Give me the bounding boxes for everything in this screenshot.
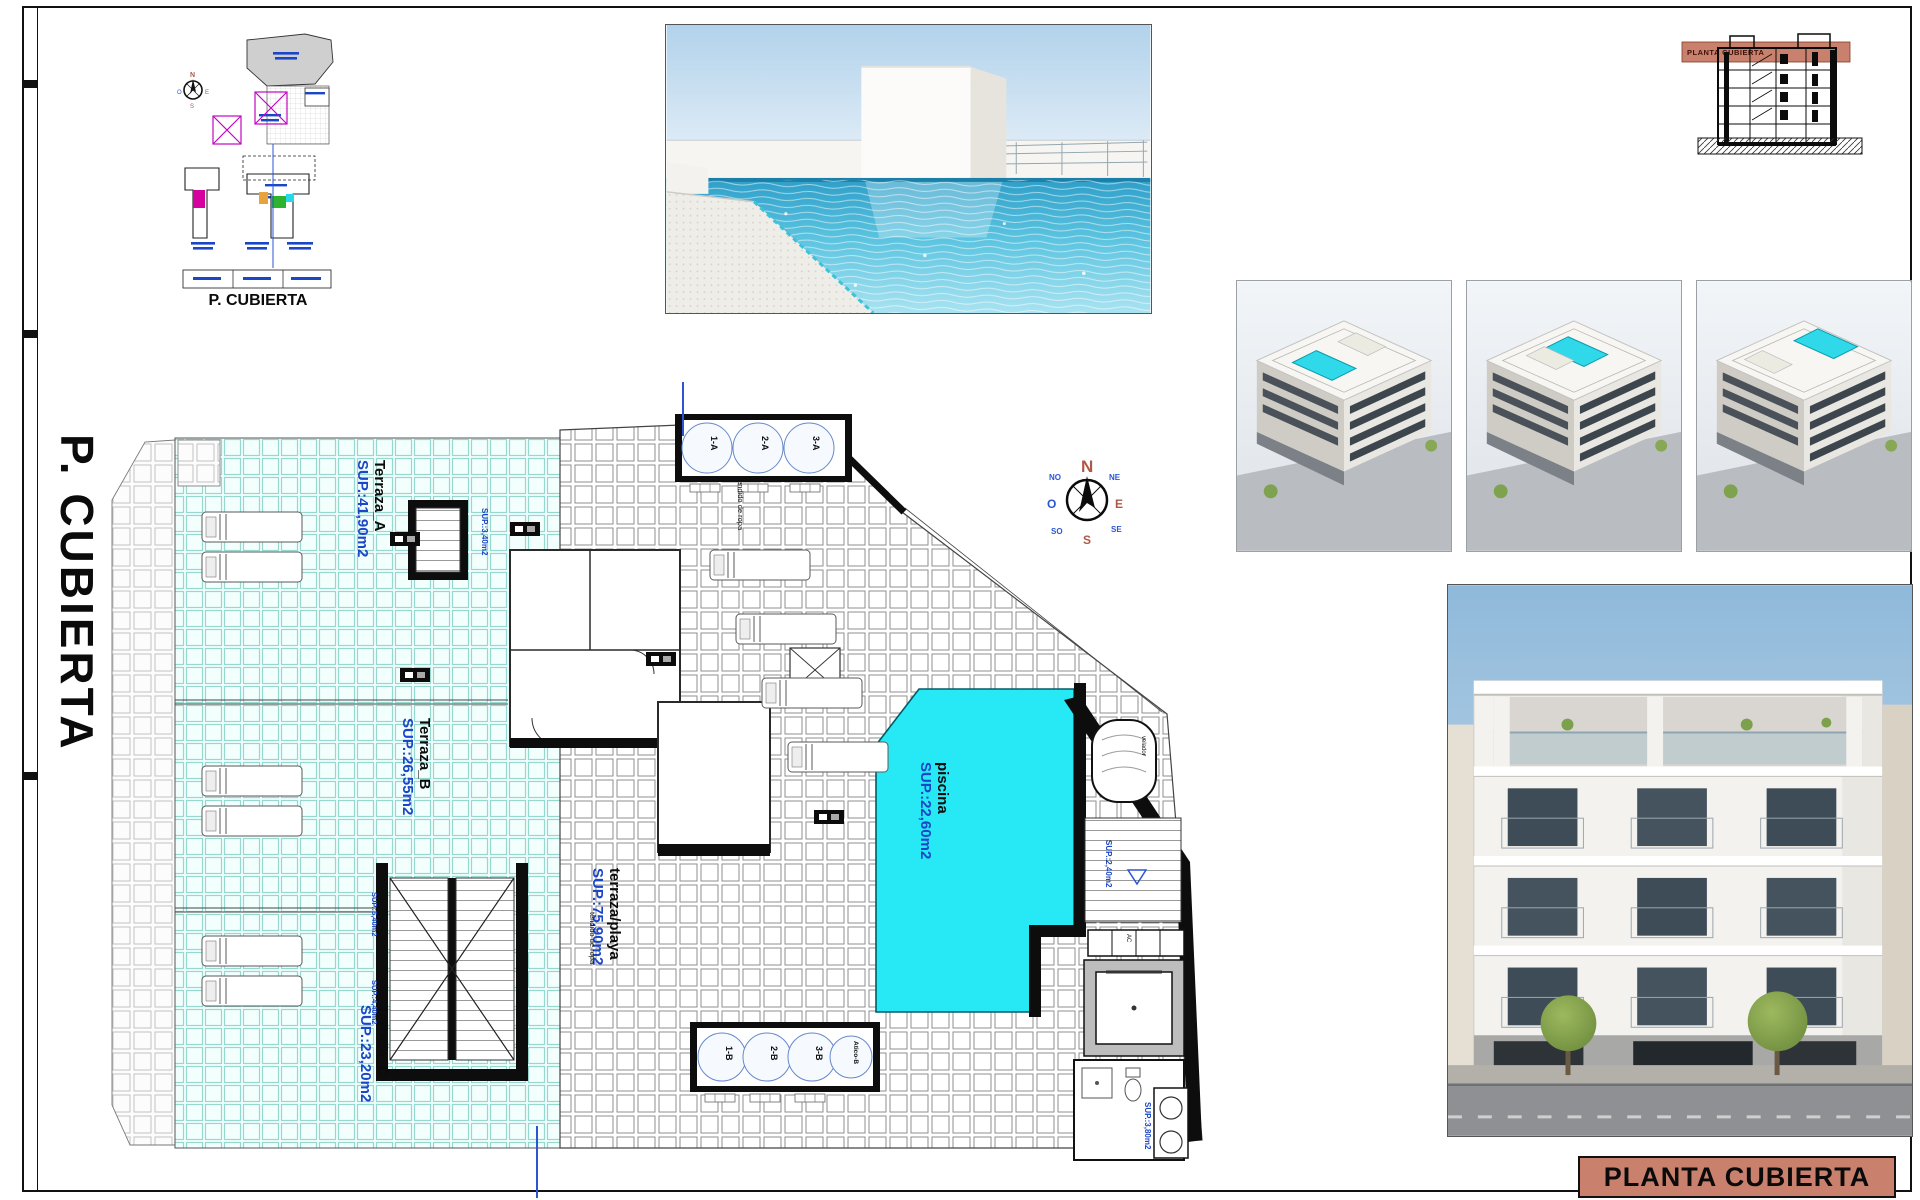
- stair-top-sup-label: SUP.:3,40m2: [480, 508, 489, 556]
- tendido-label: tendido de ropa: [736, 478, 745, 531]
- skylight-label: Atico-B: [852, 1041, 859, 1064]
- section-cut-line: [536, 1126, 538, 1198]
- skylight-box-bottom: 1-B 2-B 3-B Atico-B: [690, 1022, 880, 1102]
- svg-text:N: N: [190, 72, 195, 79]
- skylight-label: 2-A: [760, 436, 770, 451]
- svg-text:NO: NO: [1049, 473, 1061, 482]
- facade-floors: [1474, 766, 1882, 1027]
- svg-text:E: E: [1115, 497, 1123, 511]
- svg-text:SO: SO: [1051, 527, 1063, 536]
- stair-mid-sup-label: SUP.:5,40m2: [370, 892, 379, 936]
- stair-right-sup-label: SUP.:2,40m2: [1104, 840, 1113, 888]
- skylight-box-top: 1-A 2-A 3-A: [675, 414, 852, 492]
- compass-rose-icon: N S E O NE SE SO NO: [1047, 457, 1123, 547]
- drawing-sheet: P. CUBIERTA N S E O: [0, 0, 1920, 1200]
- stair-core-mid: SUP.:5,40m2 SUP.:4,40m2: [370, 863, 528, 1081]
- site-microlabel: [191, 242, 313, 250]
- svg-text:SUP.:23,20m2: SUP.:23,20m2: [357, 1005, 374, 1102]
- sheet-frame-inner-line: [37, 6, 38, 1192]
- mini-compass-rose-icon: N S E O: [177, 72, 209, 110]
- area-label-piscina: piscina: [934, 762, 951, 814]
- skylight-label: 3-A: [811, 436, 821, 451]
- section-windows: [1724, 50, 1836, 144]
- pool-render-image: [665, 24, 1152, 314]
- svg-text:S: S: [190, 104, 194, 110]
- axon-render-2: [1466, 280, 1682, 552]
- svg-text:N: N: [1081, 457, 1093, 476]
- svg-text:Terraza_C: Terraza_C: [374, 1005, 391, 1077]
- outer-roof-strip: [112, 440, 175, 1145]
- svg-text:terraza/playa: terraza/playa: [606, 868, 623, 960]
- axon-render-3: [1696, 280, 1912, 552]
- svg-text:O: O: [177, 90, 182, 96]
- frame-tick: [22, 772, 37, 780]
- roof-floor-plan: 1-A 2-A 3-A 1-B 2-B 3-B Atico-B SUP.:3,4…: [90, 400, 1220, 1200]
- section-thumbnail: PLANTA CUBIERTA: [1680, 22, 1880, 162]
- key-site-plan: N S E O: [155, 28, 365, 308]
- site-microlabel: [193, 277, 321, 280]
- velador-label: velador: [1140, 736, 1146, 756]
- skylight-label: 1-B: [724, 1046, 734, 1061]
- svg-text:S: S: [1083, 533, 1091, 547]
- area-sup-bano: SUP.:3,80m2: [1143, 1102, 1152, 1150]
- title-block-label: PLANTA CUBIERTA: [1604, 1162, 1870, 1193]
- site-color-chip: [286, 194, 294, 202]
- svg-text:NE: NE: [1109, 473, 1121, 482]
- area-sup-piscina: SUP.:22,60m2: [917, 762, 934, 859]
- skylight-label: 3-B: [814, 1046, 824, 1061]
- roof-block: [861, 67, 970, 180]
- tendido-label: tendido de ropa: [588, 912, 597, 965]
- roof-box-block: [658, 702, 770, 856]
- axon-render-1: [1236, 280, 1452, 552]
- skylight-label: 2-B: [769, 1046, 779, 1061]
- rooms-block: [510, 550, 680, 748]
- ac-label: AC: [1125, 934, 1131, 943]
- svg-text:O: O: [1047, 497, 1056, 511]
- svg-text:E: E: [205, 90, 209, 96]
- site-color-chip: [259, 192, 268, 204]
- frame-tick: [22, 80, 37, 88]
- site-box: [305, 88, 329, 106]
- skylight-label: 1-A: [709, 436, 719, 451]
- section-cut-line: [682, 382, 684, 436]
- site-gray-zone: [247, 34, 333, 86]
- svg-text:SUP.:26,55m2: SUP.:26,55m2: [399, 718, 416, 815]
- frame-tick: [22, 330, 37, 338]
- svg-text:Terraza_B: Terraza_B: [416, 718, 433, 790]
- title-block: PLANTA CUBIERTA: [1578, 1156, 1896, 1198]
- site-color-chip: [193, 190, 205, 208]
- svg-text:SE: SE: [1111, 525, 1122, 534]
- svg-text:SUP.:41,90m2: SUP.:41,90m2: [354, 460, 371, 557]
- bathroom: BAÑO.2 SUP.:3,80m2: [1074, 1060, 1188, 1160]
- svg-text:Terraza_A: Terraza_A: [371, 460, 388, 532]
- key-site-plan-caption: P. CUBIERTA: [209, 292, 308, 308]
- facade-render-image: [1447, 584, 1913, 1137]
